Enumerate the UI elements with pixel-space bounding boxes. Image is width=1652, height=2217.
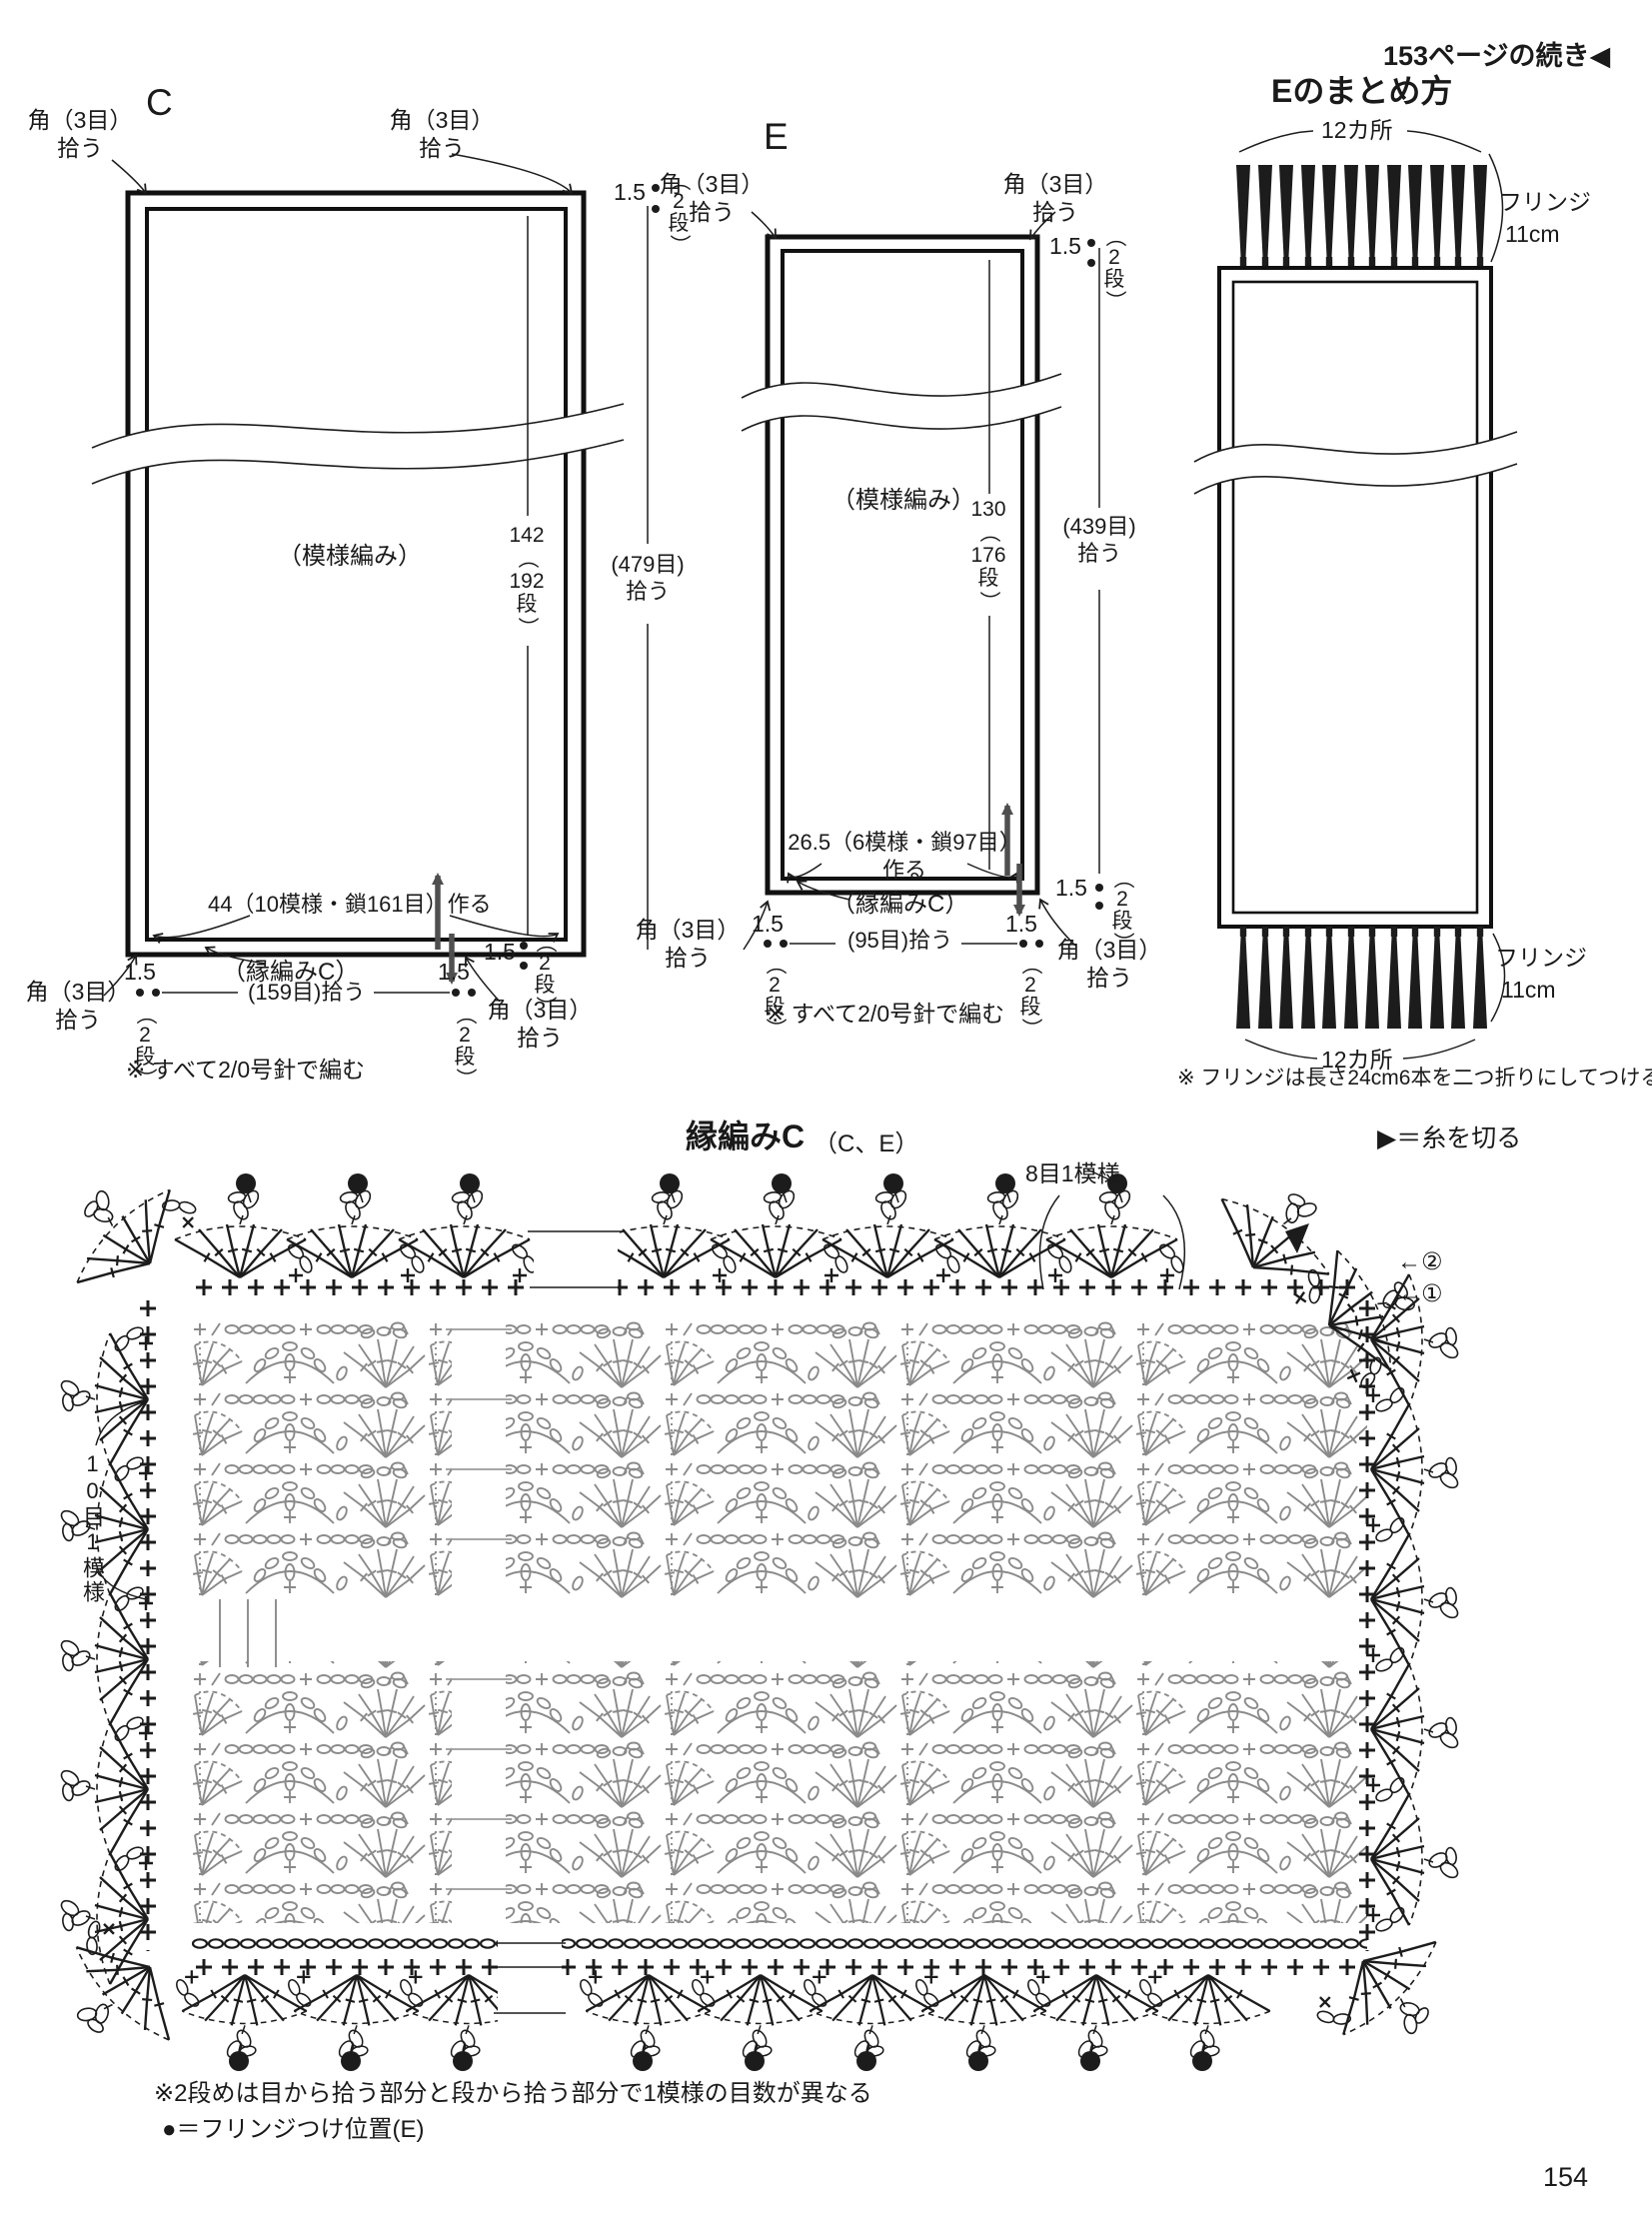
lace-body-upper — [192, 1321, 1367, 1599]
chain-row-bottom — [192, 1937, 1367, 1950]
repeat-label-side: 10目1模様 — [76, 1451, 108, 1604]
e-edge-rows-right: （ 2 段 ） — [1109, 868, 1135, 954]
row-1-marker: ←① — [1397, 1279, 1443, 1308]
lace-body-lower — [192, 1661, 1367, 1923]
c-pattern-stitch-label: （模様編み） — [278, 542, 422, 571]
edging-fans-top — [175, 1188, 1185, 1282]
e-edge-rows-top-right: （ 2 段 ） — [1101, 226, 1127, 312]
c-bottom-stitch-count: (159目)拾う — [248, 980, 365, 1007]
edging-fans-bottom — [175, 1970, 1270, 2060]
c-edge-rows-bottom-right: （ 2 段 ） — [452, 1004, 478, 1090]
pattern-book-page: 153ページの続き◀ C 角（3目）拾う 角（3目）拾う 1.5 （ 2 段 ）… — [0, 0, 1652, 2217]
chart-note-fringe: ●＝フリンジつけ位置(E) — [162, 2115, 425, 2144]
e-needle-note: ※ すべて2/0号針で編む — [766, 1000, 1004, 1028]
piece-c-title: C — [146, 80, 173, 125]
c-corner-top-left-label: 角（3目）拾う — [20, 106, 140, 162]
finishing-note: ※ フリンジは長さ24cm6本を二つ折りにしてつける — [1177, 1066, 1652, 1092]
c-cast-on-label: 44（10模様・鎖161目）作る — [208, 892, 492, 919]
e-corner-bottom-left-label: 角（3目）拾う — [628, 916, 748, 972]
piece-e-title: E — [764, 114, 789, 159]
schematic-c — [92, 154, 660, 1002]
c-edge-rows-right: （ 2 段 ） — [532, 932, 558, 1018]
e-row-count: 130 （ 176 段 ） — [965, 498, 1011, 613]
page-number: 154 — [1543, 2161, 1588, 2194]
schematic-e-finishing — [1194, 131, 1517, 1059]
c-row-count: 142 （ 192 段 ） — [504, 524, 550, 639]
chart-title: 縁編みC — [686, 1117, 805, 1156]
page-artwork — [0, 0, 1652, 2217]
e-edge-width-right: 1.5 — [1055, 874, 1087, 902]
e-pattern-stitch-label: （模様編み） — [831, 486, 975, 515]
e-edge-rows-bottom-right: （ 2 段 ） — [1017, 954, 1043, 1040]
continued-from-header: 153ページの続き◀ — [1383, 40, 1610, 73]
cut-yarn-legend: ▶＝糸を切る — [1377, 1123, 1521, 1154]
edging-chart — [34, 1147, 1472, 2079]
fringe-top-row — [1236, 165, 1487, 267]
sc-row-bottom — [192, 1957, 1355, 1977]
e-edging-label: （縁編みC） — [831, 890, 968, 919]
e-edge-width-top-right: 1.5 — [1049, 232, 1081, 260]
c-edge-width-top-right: 1.5 — [614, 178, 646, 206]
e-side-stitch-count: (439目)拾う — [1051, 514, 1147, 568]
e-corner-top-right-label: 角（3目）拾う — [995, 170, 1115, 226]
fringe-bottom-row — [1236, 927, 1487, 1029]
c-edge-width-bottom-left: 1.5 — [124, 958, 156, 986]
e-edge-width-bottom-right: 1.5 — [1005, 910, 1037, 938]
e-cast-on-label: 26.5（6模様・鎖97目） — [765, 830, 1044, 857]
fringe-dots-top — [236, 1173, 1127, 1193]
c-needle-note: ※ すべて2/0号針で編む — [126, 1056, 365, 1084]
fringe-label-bottom-2: 11cm — [1501, 976, 1556, 1004]
e-corner-top-left-label: 角（3目）拾う — [652, 170, 772, 226]
e-edge-width-bottom-left: 1.5 — [752, 910, 784, 938]
chart-subtitle: （C、E） — [814, 1129, 918, 1158]
omission-gap-bottom-edging — [498, 1933, 562, 2079]
e-cast-on-label-2: 作る — [765, 858, 1044, 885]
repeat-label-top: 8目1模様 — [1025, 1159, 1120, 1187]
e-bottom-stitch-count: (95目)拾う — [847, 928, 952, 955]
fringe-label-top-1: フリンジ — [1499, 188, 1591, 216]
fringe-label-bottom-1: フリンジ — [1495, 944, 1587, 972]
omission-gap-body — [452, 1319, 506, 1925]
dimension-dots-c — [136, 184, 660, 997]
fringe-label-top-2: 11cm — [1505, 220, 1560, 248]
omission-gap-top-edging — [534, 1161, 618, 1275]
finishing-places-top: 12カ所 — [1321, 116, 1393, 144]
c-corner-bottom-left-label: 角（3目）拾う — [18, 978, 138, 1034]
chart-note-rows: ※2段めは目から拾う部分と段から拾う部分で1模様の目数が異なる — [154, 2079, 872, 2108]
row-2-marker: ←② — [1397, 1247, 1443, 1276]
fringe-dots-bottom — [229, 2051, 1212, 2071]
c-side-stitch-count: (479目)拾う — [600, 552, 696, 606]
finishing-title: Eのまとめ方 — [1271, 72, 1452, 111]
edging-fans-left — [34, 1147, 205, 2076]
c-edge-width-right: 1.5 — [484, 938, 516, 966]
c-edge-width-bottom-right: 1.5 — [438, 958, 470, 986]
c-corner-top-right-label: 角（3目）拾う — [382, 106, 502, 162]
